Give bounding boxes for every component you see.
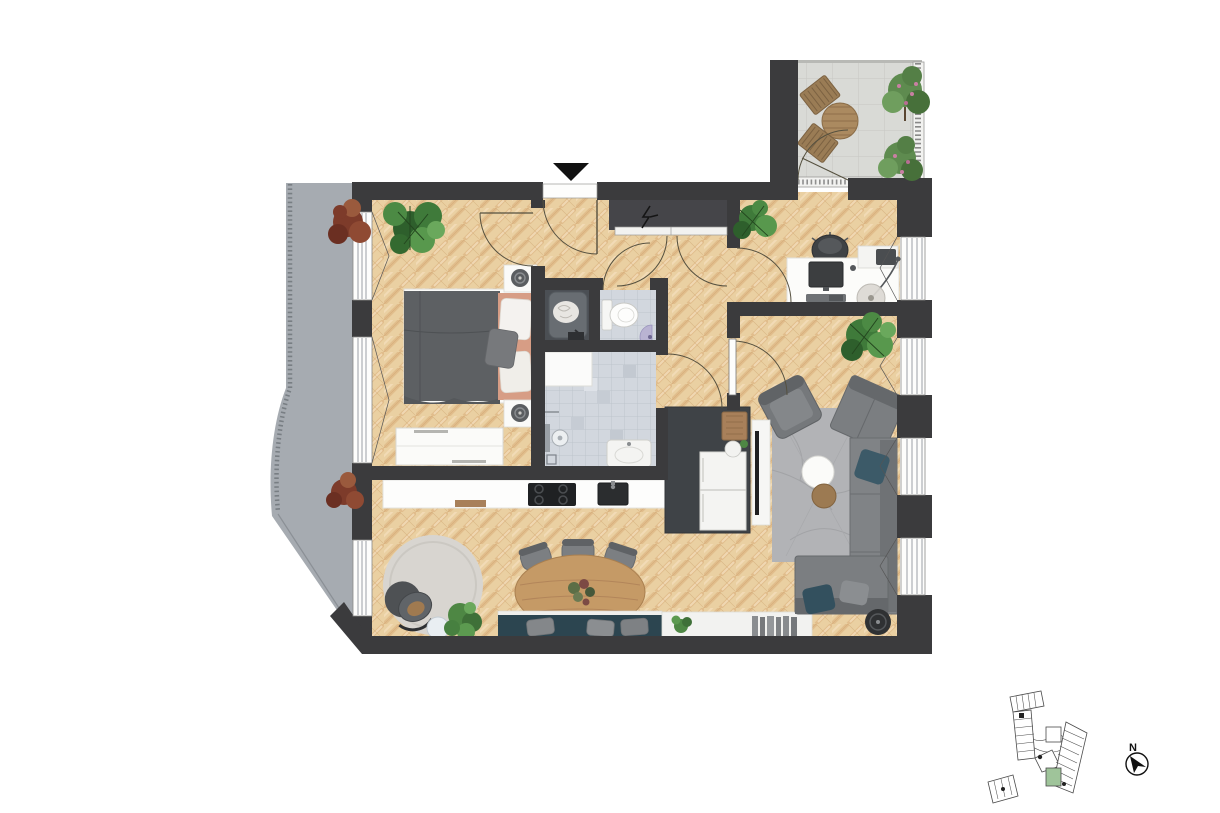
bench-pillow — [620, 618, 648, 636]
printer — [858, 246, 898, 268]
entrance-marker-icon — [553, 163, 589, 181]
laundry-closet — [545, 288, 591, 344]
wall-hall-living — [727, 393, 740, 410]
bathroom-sink — [607, 440, 651, 467]
laundry-cloth — [553, 301, 579, 323]
tv — [755, 431, 759, 515]
monitor — [809, 262, 843, 291]
wardrobe — [396, 428, 503, 465]
bed-duvet — [404, 291, 500, 401]
tall-cabinet-fridge-block — [665, 407, 750, 533]
fridge — [700, 452, 746, 530]
utility-closet — [609, 200, 727, 230]
wall-top-right — [597, 182, 772, 200]
floor-plan-canvas: N — [0, 0, 1220, 813]
north-label: N — [1129, 742, 1137, 754]
keyplan-center-block — [1046, 727, 1061, 742]
cutting-board — [455, 500, 486, 507]
wall-pier — [352, 300, 372, 337]
wall-bath-mid — [545, 340, 668, 352]
vanity-counter — [545, 352, 592, 386]
keyplan-entry-dot — [1062, 782, 1066, 786]
entrance-door-threshold — [543, 184, 597, 198]
cooktop — [528, 483, 576, 506]
double-bed — [404, 289, 536, 404]
mouse-pad — [829, 295, 843, 301]
north-arrow: N — [1126, 742, 1148, 775]
bench-pillow — [526, 617, 555, 636]
window-bench — [498, 611, 662, 639]
floor-plan-drawing: N — [0, 0, 1220, 813]
pen-cup — [850, 265, 856, 271]
keyplan-highlighted-unit — [1046, 768, 1061, 786]
tv-sideboard — [752, 420, 770, 525]
island-sink — [725, 441, 741, 457]
wall-bath-right — [656, 408, 668, 470]
wall-hall-living — [727, 316, 740, 338]
keyplan-stair-dot — [1038, 755, 1042, 759]
wall-laundry-wc — [589, 285, 600, 342]
wall-pier — [897, 395, 932, 438]
bench-pillow — [586, 619, 614, 637]
window-left-3 — [353, 540, 372, 616]
wall-pier — [897, 300, 932, 338]
wall-bedroom-hall — [531, 266, 545, 480]
speaker — [865, 609, 891, 635]
bathroom — [545, 352, 656, 468]
side-table-round — [812, 484, 836, 508]
keyplan-top-wing — [1010, 691, 1044, 712]
wall-top-left — [352, 182, 543, 200]
terrace-top-edge — [796, 60, 922, 63]
compass-needle-icon — [1130, 756, 1146, 773]
keyplan-annex-dot — [1001, 787, 1005, 791]
wall-pier — [897, 495, 932, 538]
wall-bath-right — [656, 290, 668, 355]
kitchen-sink — [598, 481, 628, 505]
island-plant — [740, 440, 748, 448]
sideboard — [662, 612, 812, 639]
throw-pillow — [484, 328, 518, 369]
keyplan-stair-core — [1019, 713, 1024, 718]
wall-bedroom-bottom — [360, 466, 668, 480]
coffee-table — [802, 456, 834, 488]
wall-pier — [897, 182, 932, 237]
wall-terrace-left — [770, 60, 798, 200]
wall-bath-top — [650, 278, 668, 290]
living-door-leaf — [729, 339, 736, 395]
keyplan — [988, 691, 1087, 803]
